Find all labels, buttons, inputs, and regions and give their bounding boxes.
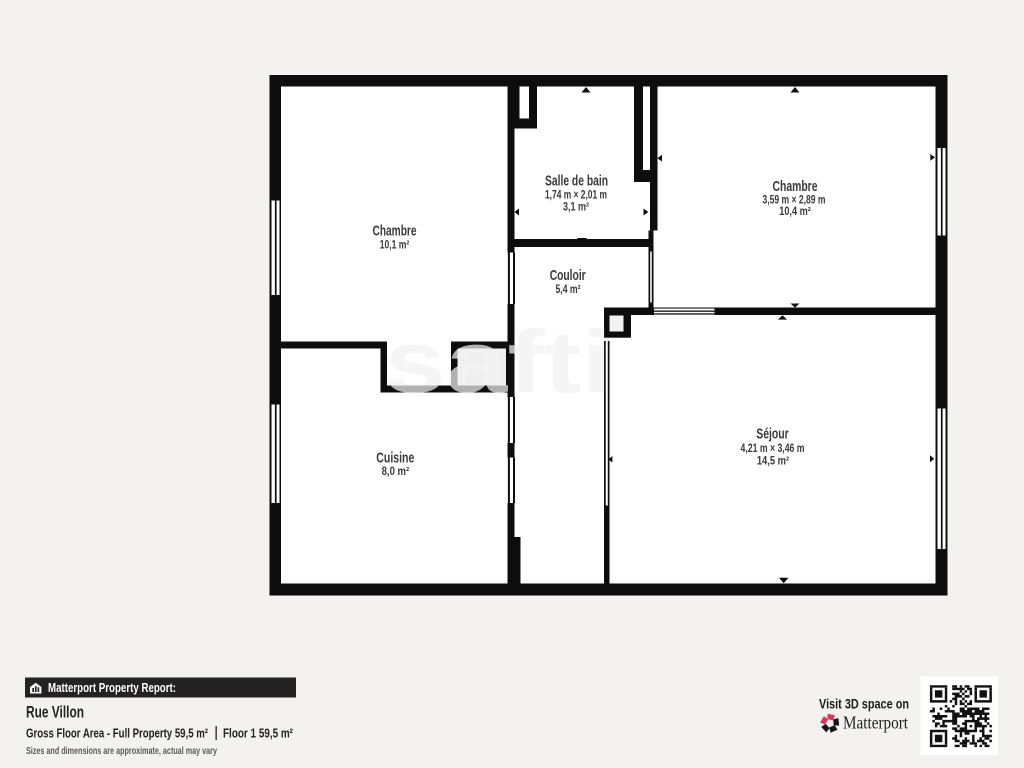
svg-text:8,0 m²: 8,0 m² [382,466,410,478]
svg-text:Séjour: Séjour [756,426,789,443]
svg-text:Sizes and dimensions are appro: Sizes and dimensions are approximate, ac… [26,746,217,757]
svg-text:3,1 m²: 3,1 m² [563,202,589,214]
svg-text:safti: safti [384,312,612,411]
svg-text:4,21 m × 3,46 m: 4,21 m × 3,46 m [741,443,805,455]
svg-text:Chambre: Chambre [773,178,818,195]
svg-text:1,74 m × 2,01 m: 1,74 m × 2,01 m [545,190,607,202]
svg-text:Rue Villon: Rue Villon [26,703,84,722]
svg-text:14,5 m²: 14,5 m² [757,455,789,467]
svg-text:Chambre: Chambre [373,223,417,240]
svg-text:Salle de bain: Salle de bain [545,173,608,190]
svg-text:Matterport: Matterport [843,713,908,733]
svg-text:Couloir: Couloir [550,267,586,284]
svg-text:Matterport Property Report:: Matterport Property Report: [48,681,176,695]
svg-text:Gross Floor Area - Full Proper: Gross Floor Area - Full Property 59,5 m² [26,727,208,741]
svg-text:Floor 1 59,5 m²: Floor 1 59,5 m² [223,727,293,741]
svg-text:Visit 3D space on: Visit 3D space on [819,697,909,712]
svg-text:Cuisine: Cuisine [376,450,414,467]
svg-text:10,4 m²: 10,4 m² [779,206,811,218]
svg-text:5,4 m²: 5,4 m² [556,284,581,296]
svg-text:10,1 m²: 10,1 m² [380,240,410,252]
svg-text:3,59 m × 2,89 m: 3,59 m × 2,89 m [763,195,826,207]
